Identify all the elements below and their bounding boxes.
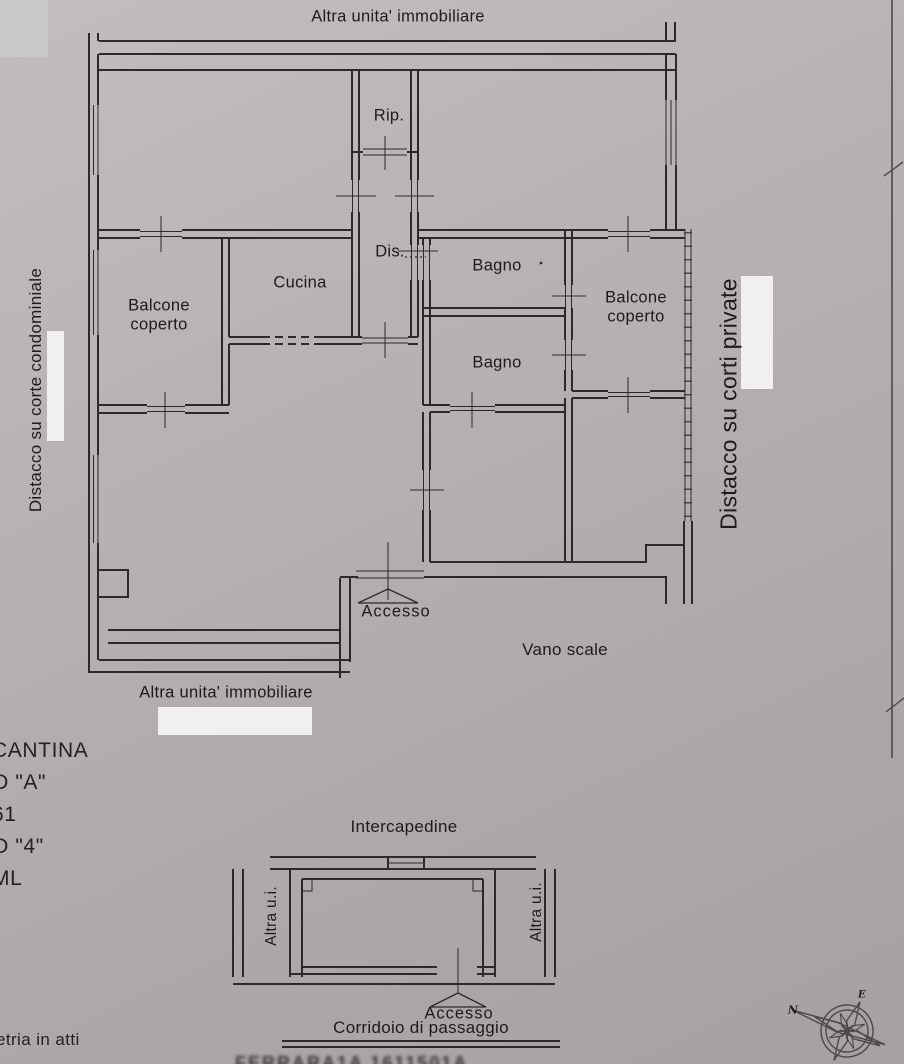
room-label-bagno-bottom: Bagno bbox=[472, 354, 521, 373]
room-label-bagno-top: Bagno bbox=[472, 257, 521, 276]
room-label-rip: Rip. bbox=[374, 107, 405, 126]
left-column-line-piano-4: O "4" bbox=[0, 835, 44, 859]
cantina-title: Intercapedine bbox=[351, 817, 458, 837]
main-plan-right-side-label: Distacco su corti private bbox=[716, 278, 743, 530]
compass-east-label: E bbox=[858, 990, 866, 1001]
left-column-bottom-note: etria in atti bbox=[0, 1030, 80, 1050]
label-accesso-main: Accesso bbox=[361, 603, 430, 622]
dashed-wall-opening bbox=[262, 337, 322, 344]
page-edge-line bbox=[884, 0, 904, 758]
ink-dot bbox=[540, 262, 543, 265]
main-plan-openings bbox=[94, 100, 692, 600]
room-label-cucina: Cucina bbox=[273, 274, 326, 293]
cantina-right-side-label: Altra u.i. bbox=[528, 882, 546, 942]
floor-plan-linework bbox=[0, 0, 904, 1064]
room-label-balcone-right: Balcone coperto bbox=[592, 289, 680, 328]
compass-north-label: N bbox=[788, 1004, 798, 1017]
cantina-left-side-label: Altra u.i. bbox=[263, 886, 281, 946]
left-column-line-piano-a: O "A" bbox=[0, 771, 46, 795]
left-column-line-cantina: CANTINA bbox=[0, 739, 88, 763]
room-label-balcone-left: Balcone coperto bbox=[115, 297, 203, 336]
main-plan-bottom-label: Altra unita' immobiliare bbox=[139, 684, 313, 703]
scanned-floor-plan-page: Altra unita' immobiliare Rip. Dis. Cucin… bbox=[0, 0, 904, 1064]
cantina-bottom-label: Corridoio di passaggio bbox=[333, 1018, 509, 1038]
main-plan-left-side-label: Distacco su corte condominiale bbox=[26, 268, 46, 512]
bottom-cutoff-blur-text: FERRARA1A 1611501A bbox=[235, 1053, 468, 1064]
left-column-line-ml: ML bbox=[0, 867, 22, 891]
compass-rose-icon bbox=[781, 978, 897, 1064]
room-label-dis: Dis. bbox=[375, 243, 405, 262]
left-column-line-61: 61 bbox=[0, 803, 17, 827]
main-plan-top-label: Altra unita' immobiliare bbox=[311, 8, 485, 27]
label-vano-scale: Vano scale bbox=[522, 640, 608, 660]
